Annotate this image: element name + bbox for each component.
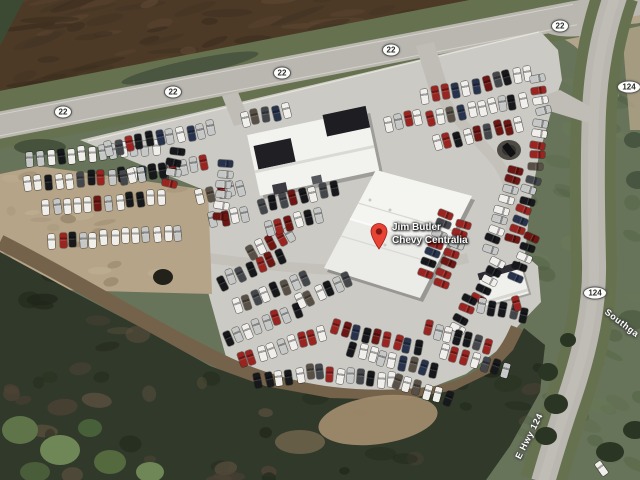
- parked-car: [279, 279, 291, 296]
- parked-car: [394, 114, 404, 130]
- parked-car: [146, 190, 154, 205]
- parked-car: [535, 105, 551, 116]
- parked-car: [532, 118, 548, 127]
- parked-car: [347, 368, 355, 383]
- parked-car: [433, 324, 444, 340]
- parked-car: [504, 174, 520, 185]
- route-shield-22: 22: [164, 86, 182, 99]
- parked-car: [530, 151, 545, 159]
- place-name-line2: Chevy Centralia: [392, 235, 468, 248]
- parked-car: [264, 234, 277, 251]
- parked-car: [376, 350, 387, 366]
- place-pin-icon[interactable]: [369, 222, 389, 250]
- parked-car: [154, 227, 163, 243]
- parked-car: [330, 318, 341, 334]
- parked-car: [214, 201, 230, 210]
- parked-car: [77, 146, 86, 162]
- parked-car: [218, 170, 234, 178]
- parked-car: [330, 180, 340, 196]
- parked-car: [215, 190, 231, 199]
- parked-car: [25, 152, 33, 167]
- parked-car: [499, 194, 515, 205]
- parked-car: [65, 173, 74, 189]
- parked-car: [463, 331, 473, 347]
- parked-car: [286, 335, 298, 351]
- parked-car: [195, 123, 205, 139]
- parked-car: [507, 94, 516, 110]
- parked-car: [482, 75, 493, 91]
- parked-car: [57, 149, 66, 165]
- parked-car: [205, 186, 215, 202]
- parked-car: [505, 234, 521, 245]
- parked-car: [293, 211, 304, 227]
- parked-car: [384, 117, 394, 133]
- parked-car: [409, 356, 419, 372]
- parked-car: [428, 363, 438, 379]
- parked-car: [467, 101, 477, 117]
- parked-car: [487, 301, 497, 317]
- parked-car: [472, 334, 483, 350]
- parked-car: [423, 319, 433, 335]
- parked-car: [63, 199, 71, 214]
- parked-car: [436, 267, 453, 279]
- parked-car: [315, 364, 324, 380]
- route-shield-22: 22: [551, 20, 569, 33]
- parked-car: [431, 86, 441, 102]
- parked-car: [175, 127, 186, 143]
- parked-car: [527, 163, 542, 171]
- place-label[interactable]: Jim Butler Chevy Centralia: [392, 222, 468, 247]
- parked-car: [47, 150, 55, 166]
- parked-car: [74, 198, 82, 213]
- parked-car: [97, 170, 105, 185]
- parked-car: [532, 129, 548, 138]
- parked-car: [268, 282, 280, 299]
- parked-car: [519, 92, 529, 108]
- parked-car: [36, 151, 44, 167]
- parked-car: [307, 186, 317, 202]
- route-shield-124: 124: [583, 287, 607, 300]
- parked-car: [104, 195, 113, 211]
- parked-car: [483, 124, 492, 140]
- parked-car: [470, 352, 481, 368]
- parked-car: [69, 232, 76, 247]
- parked-car: [84, 197, 91, 212]
- parked-car: [497, 95, 506, 111]
- parked-car: [252, 373, 262, 389]
- parked-car: [33, 175, 42, 191]
- place-name-line1: Jim Butler: [392, 222, 468, 235]
- parked-car: [511, 260, 527, 272]
- parked-car: [277, 338, 289, 354]
- parked-car: [500, 362, 511, 378]
- parked-car: [402, 338, 412, 354]
- parked-car: [239, 206, 249, 222]
- parked-car: [284, 369, 293, 385]
- parked-car: [487, 97, 498, 113]
- parked-car: [161, 178, 177, 188]
- parked-car: [244, 245, 257, 262]
- parked-car: [420, 88, 429, 104]
- parked-car: [425, 110, 435, 126]
- parked-car: [366, 371, 375, 387]
- parked-car: [448, 347, 459, 363]
- parked-car: [443, 326, 453, 342]
- parked-car: [458, 349, 469, 365]
- parked-car: [268, 195, 278, 211]
- route-shield-22: 22: [382, 44, 400, 57]
- parked-car: [169, 147, 185, 156]
- parked-car: [473, 125, 483, 141]
- parked-car: [205, 120, 215, 136]
- parked-car: [44, 175, 52, 191]
- parked-car: [413, 109, 423, 125]
- parked-car: [134, 134, 143, 150]
- parked-car: [414, 340, 424, 356]
- parked-car: [482, 338, 493, 354]
- parked-car: [530, 86, 546, 95]
- parked-car: [241, 323, 253, 340]
- parked-car: [100, 229, 108, 244]
- parked-car: [530, 140, 546, 149]
- parked-car: [483, 244, 499, 255]
- parked-car: [278, 192, 289, 208]
- route-shield-22: 22: [273, 67, 291, 80]
- parked-car: [351, 324, 361, 340]
- parked-car: [432, 386, 443, 402]
- parked-car: [457, 105, 467, 121]
- parked-car: [136, 192, 145, 208]
- parked-car: [316, 326, 327, 342]
- parked-car: [442, 390, 454, 407]
- parked-car: [503, 119, 513, 135]
- parked-car: [371, 328, 381, 344]
- parked-car: [397, 355, 407, 371]
- parked-car: [529, 74, 545, 84]
- parked-car: [218, 159, 233, 167]
- parked-car: [490, 358, 502, 374]
- parked-car: [314, 207, 324, 223]
- parked-car: [145, 131, 155, 147]
- parked-car: [271, 105, 281, 121]
- parked-car: [472, 78, 481, 94]
- parked-car: [519, 241, 535, 252]
- parked-car: [304, 209, 314, 225]
- parked-car: [88, 170, 96, 185]
- parked-car: [164, 129, 173, 145]
- parked-car: [451, 83, 461, 99]
- parked-car: [477, 100, 487, 116]
- parked-car: [401, 376, 412, 392]
- parked-car: [356, 369, 364, 385]
- parked-car: [594, 460, 608, 476]
- parked-car: [296, 367, 305, 383]
- parked-car: [306, 364, 315, 380]
- parked-car: [441, 133, 452, 149]
- parked-car: [525, 175, 541, 186]
- parked-car: [213, 213, 228, 221]
- parked-car: [23, 175, 32, 191]
- parked-car: [164, 226, 171, 241]
- parked-car: [440, 83, 449, 99]
- parked-car: [358, 344, 368, 360]
- parked-car: [141, 227, 149, 243]
- parked-car: [187, 125, 197, 141]
- parked-car: [306, 329, 317, 345]
- parked-car: [412, 379, 422, 395]
- parked-car: [42, 200, 50, 215]
- parked-car: [194, 188, 204, 204]
- parked-car: [125, 192, 134, 208]
- parked-car: [341, 321, 352, 337]
- parked-car: [251, 318, 263, 334]
- parked-car: [264, 371, 274, 387]
- parked-car: [173, 226, 181, 242]
- parked-car: [480, 356, 491, 372]
- parked-car: [463, 128, 474, 144]
- parked-car: [281, 102, 292, 118]
- parked-car: [287, 190, 298, 206]
- parked-car: [116, 194, 125, 210]
- parked-car: [532, 96, 548, 105]
- parked-car: [132, 228, 140, 243]
- parked-car: [68, 149, 76, 165]
- parked-car: [513, 116, 523, 132]
- parked-car: [318, 182, 328, 198]
- parked-car: [235, 180, 246, 196]
- parked-car: [418, 359, 429, 375]
- parked-car: [47, 234, 55, 249]
- parked-car: [241, 295, 252, 311]
- parked-car: [158, 190, 166, 205]
- parked-car: [80, 232, 88, 247]
- parked-car: [523, 231, 540, 243]
- parked-car: [112, 230, 119, 245]
- parked-car: [122, 228, 129, 243]
- parked-car: [403, 111, 413, 127]
- parked-car: [346, 342, 357, 358]
- parked-car: [436, 108, 445, 124]
- parked-car: [452, 131, 463, 147]
- parked-car: [507, 271, 524, 283]
- parked-car: [421, 257, 437, 269]
- parked-car: [513, 68, 522, 84]
- parked-car: [52, 198, 61, 214]
- parked-car: [261, 107, 270, 123]
- parked-car: [76, 172, 84, 187]
- parked-car: [266, 342, 278, 359]
- parked-car: [88, 146, 96, 161]
- vehicles-layer: [0, 0, 640, 480]
- parked-car: [109, 169, 117, 184]
- parked-car: [215, 180, 231, 188]
- parked-car: [325, 367, 333, 382]
- parked-car: [245, 261, 257, 278]
- parked-car: [199, 154, 209, 170]
- route-shield-124: 124: [617, 81, 640, 94]
- parked-car: [377, 373, 385, 389]
- parked-car: [498, 301, 508, 317]
- parked-car: [520, 184, 536, 195]
- parked-car: [274, 248, 286, 265]
- parked-car: [417, 267, 433, 279]
- parked-car: [234, 266, 247, 283]
- parked-car: [274, 370, 283, 386]
- parked-car: [89, 232, 96, 247]
- parked-car: [460, 80, 470, 96]
- parked-car: [256, 198, 267, 214]
- parked-car: [335, 368, 344, 384]
- parked-car: [94, 196, 102, 211]
- parked-car: [55, 173, 64, 189]
- parked-car: [422, 384, 433, 400]
- parked-car: [250, 109, 260, 125]
- parked-car: [382, 331, 392, 347]
- parked-car: [502, 184, 518, 195]
- parked-car: [189, 156, 198, 172]
- parked-car: [280, 307, 292, 324]
- parked-car: [452, 330, 463, 346]
- parked-car: [446, 106, 456, 122]
- parked-car: [387, 352, 397, 368]
- parked-car: [60, 233, 67, 248]
- satellite-map[interactable]: Jim Butler Chevy Centralia 2222222222124…: [0, 0, 640, 480]
- parked-car: [361, 327, 371, 343]
- parked-car: [230, 207, 240, 223]
- route-shield-22: 22: [54, 106, 72, 119]
